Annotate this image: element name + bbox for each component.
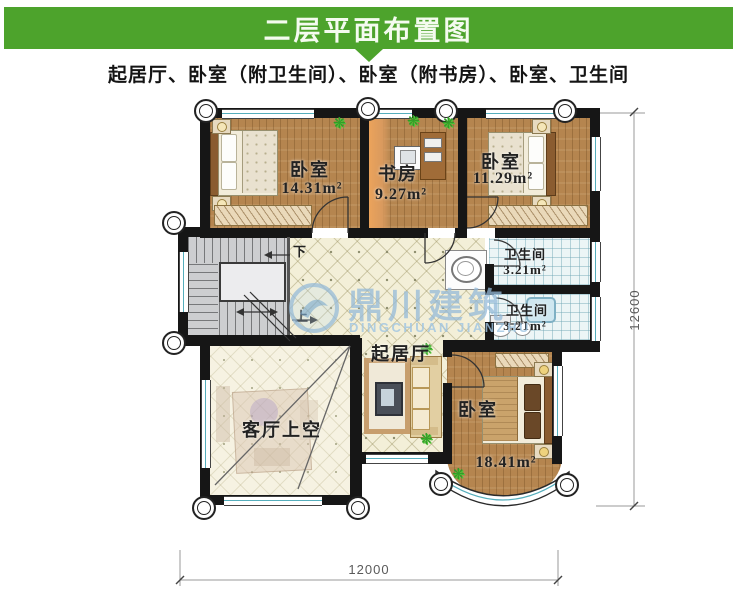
- window: [201, 380, 211, 468]
- column-marker: [192, 496, 216, 520]
- wall: [350, 338, 362, 498]
- column-marker: [346, 496, 370, 520]
- column-marker: [194, 99, 218, 123]
- cabinet-shelf: [424, 138, 442, 148]
- wall: [200, 228, 312, 238]
- stair-flight-bottom: [219, 302, 286, 337]
- room-label-bedroom-tl: 卧室: [270, 156, 350, 182]
- window: [591, 297, 601, 341]
- wall: [495, 228, 600, 238]
- room-label-void: 客厅上空: [236, 416, 328, 442]
- plant-icon: ❋: [442, 117, 455, 132]
- dimension-vertical: 12600: [627, 286, 641, 334]
- plant-icon: ❋: [452, 468, 465, 483]
- wardrobe: [214, 205, 312, 226]
- window: [591, 137, 601, 191]
- void-ghost-sofa-bottom: [254, 448, 290, 466]
- room-label-bedroom-br: 卧室: [452, 396, 504, 422]
- watermark-logo-icon: [286, 280, 342, 336]
- column-marker: [162, 211, 186, 235]
- column-marker: [555, 473, 579, 497]
- sofa-cushion: [412, 409, 430, 430]
- wall: [200, 108, 210, 232]
- wardrobe: [488, 205, 588, 226]
- nightstand: [212, 119, 231, 134]
- pillow: [221, 134, 237, 162]
- nightstand-lamp: [534, 362, 554, 377]
- plan-subtitle: 起居厅、卧室（附卫生间）、卧室（附书房）、卧室、卫生间: [0, 60, 737, 87]
- wall: [348, 228, 428, 238]
- room-area-bedroom-br: 18.41m²: [464, 454, 548, 472]
- column-marker: [162, 331, 186, 355]
- room-label-bath-upper: 卫生间: [496, 244, 554, 263]
- wall: [443, 352, 452, 357]
- washbasin-inner: [457, 261, 474, 276]
- tv-screen: [381, 389, 394, 406]
- room-label-study: 书房: [362, 160, 434, 186]
- plant-icon: ❋: [420, 433, 433, 448]
- stair-flight-left: [188, 263, 218, 337]
- pillow-dark: [524, 412, 541, 439]
- window: [366, 454, 428, 464]
- nightstand: [532, 119, 551, 134]
- title-banner: 二层平面布置图: [4, 7, 733, 49]
- page-title: 二层平面布置图: [264, 9, 474, 48]
- window: [224, 496, 322, 506]
- wall: [455, 228, 467, 238]
- stair-landing: [219, 262, 286, 302]
- plant-icon: ❋: [407, 115, 420, 130]
- watermark: 鼎川建筑 DINGCHUAN JIANZHU: [286, 278, 516, 344]
- window: [179, 252, 189, 312]
- pillow: [221, 162, 237, 190]
- column-marker: [429, 472, 453, 496]
- window: [486, 109, 562, 119]
- column-marker: [553, 99, 577, 123]
- sofa-cushion: [412, 388, 430, 409]
- plant-icon: ❋: [333, 117, 346, 132]
- pillow-dark: [524, 384, 541, 411]
- room-area-bath-upper: 3.21m²: [498, 262, 552, 278]
- sofa-cushion: [412, 367, 430, 388]
- room-area-bedroom-tl: 14.31m²: [266, 180, 358, 198]
- room-area-study: 9.27m²: [362, 186, 440, 204]
- stairs-down-label: 下: [293, 241, 306, 260]
- void-ghost-sofa-left: [216, 386, 230, 442]
- window: [591, 242, 601, 282]
- floor-plan-page: { "header": { "title": "二层平面布置图" }, "sub…: [0, 0, 737, 595]
- room-area-bedroom-tr: 11.29m²: [458, 170, 548, 188]
- stair-flight-top: [188, 237, 287, 263]
- window: [222, 109, 314, 119]
- window: [553, 366, 563, 436]
- column-marker: [356, 97, 380, 121]
- watermark-en: DINGCHUAN JIANZHU: [349, 320, 531, 335]
- dimension-horizontal: 12000: [339, 562, 399, 578]
